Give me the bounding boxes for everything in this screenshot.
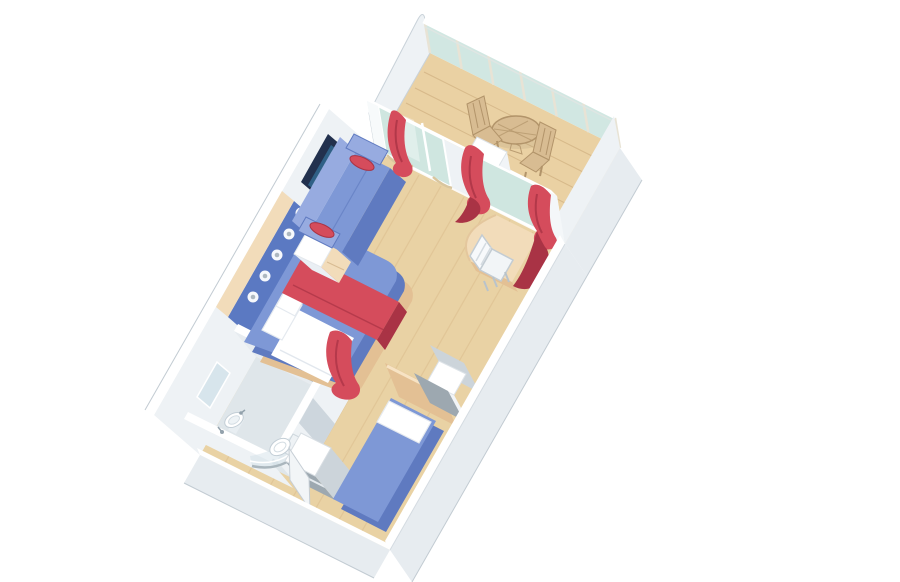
stateroom-3d-floorplan: Cruise ship stateroom with private balco…: [0, 0, 900, 582]
stateroom-floorplan-stage: Cruise ship stateroom with private balco…: [0, 0, 900, 582]
